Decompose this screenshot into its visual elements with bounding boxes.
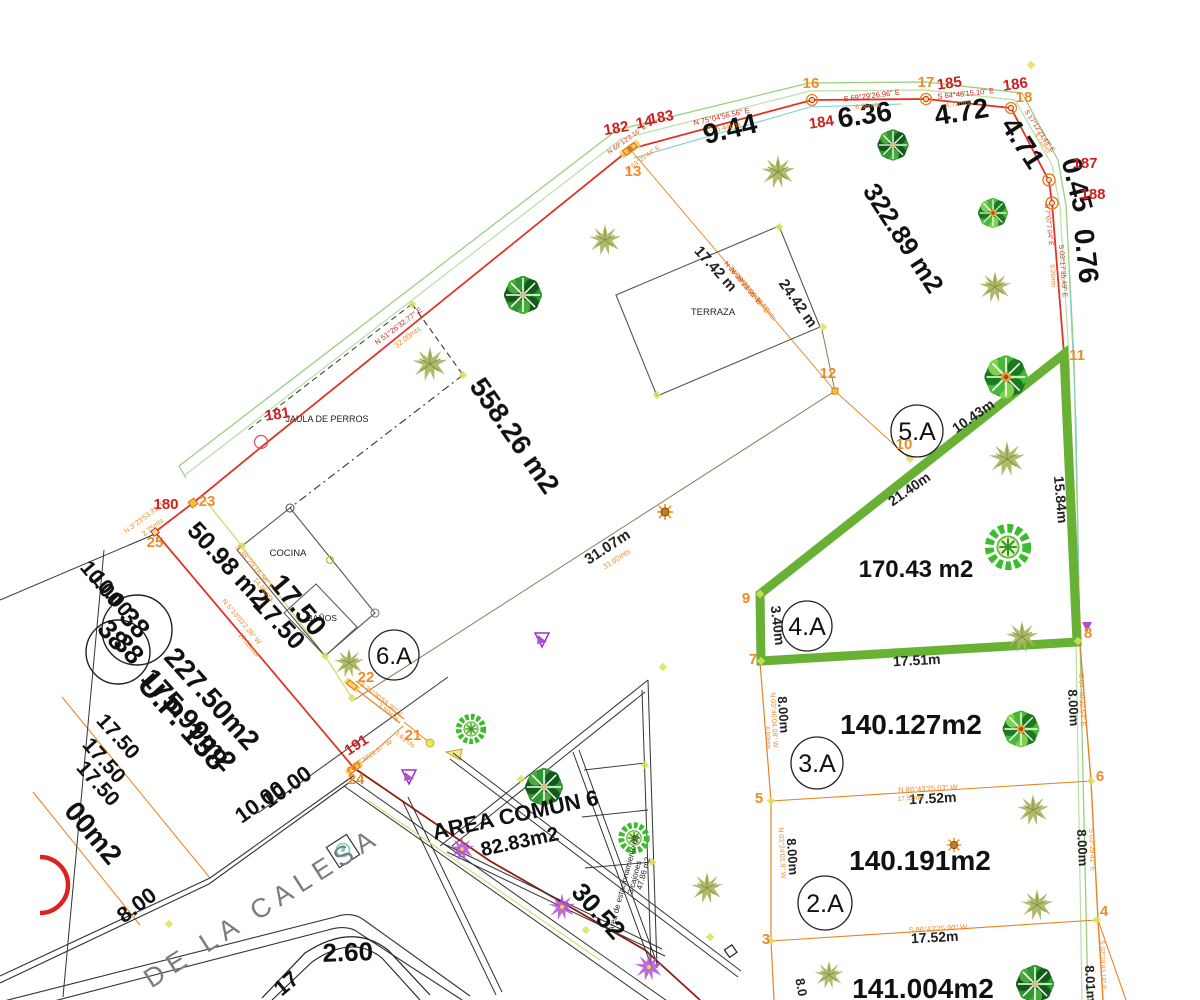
svg-text:187: 187 — [1072, 155, 1097, 172]
svg-text:141.004m2: 141.004m2 — [852, 973, 994, 1000]
svg-text:10: 10 — [896, 436, 913, 453]
svg-text:186: 186 — [1002, 74, 1029, 94]
svg-text:188: 188 — [1080, 186, 1105, 203]
svg-text:4.A: 4.A — [788, 613, 826, 641]
svg-text:COCINA: COCINA — [270, 548, 308, 559]
svg-text:2.60: 2.60 — [322, 936, 374, 968]
svg-text:3: 3 — [762, 931, 770, 948]
svg-text:181: 181 — [264, 404, 291, 424]
svg-text:17.52mts: 17.52mts — [897, 794, 925, 802]
svg-text:8.00mts: 8.00mts — [763, 726, 771, 750]
svg-text:25: 25 — [147, 534, 164, 551]
svg-text:JAULA DE PERROS: JAULA DE PERROS — [285, 414, 368, 424]
svg-text:170.43 m2: 170.43 m2 — [859, 556, 974, 583]
svg-text:TERRAZA: TERRAZA — [691, 307, 736, 318]
svg-text:6.A: 6.A — [376, 643, 412, 670]
svg-text:140.191m2: 140.191m2 — [849, 845, 991, 876]
svg-text:23: 23 — [199, 493, 216, 510]
svg-text:8.01m: 8.01m — [1082, 965, 1099, 1000]
svg-text:140.127m2: 140.127m2 — [840, 709, 982, 740]
svg-text:184: 184 — [808, 112, 836, 132]
svg-text:3.A: 3.A — [798, 750, 836, 778]
svg-text:4: 4 — [1100, 903, 1109, 920]
svg-text:6: 6 — [1096, 768, 1104, 785]
svg-text:24: 24 — [348, 771, 365, 788]
svg-text:7: 7 — [749, 651, 757, 668]
svg-text:17: 17 — [918, 74, 935, 91]
svg-text:0.76: 0.76 — [1068, 227, 1105, 284]
svg-text:16: 16 — [803, 75, 820, 92]
svg-text:2.A: 2.A — [806, 890, 844, 918]
svg-text:17.51m: 17.51m — [893, 651, 941, 669]
svg-text:5: 5 — [755, 790, 763, 807]
svg-text:12: 12 — [820, 365, 837, 382]
svg-text:8: 8 — [1084, 625, 1092, 642]
svg-text:11: 11 — [1069, 347, 1085, 364]
svg-text:8.0: 8.0 — [792, 977, 810, 997]
svg-text:9: 9 — [742, 590, 750, 607]
svg-text:S 03°29'41" E: S 03°29'41" E — [1087, 828, 1097, 872]
